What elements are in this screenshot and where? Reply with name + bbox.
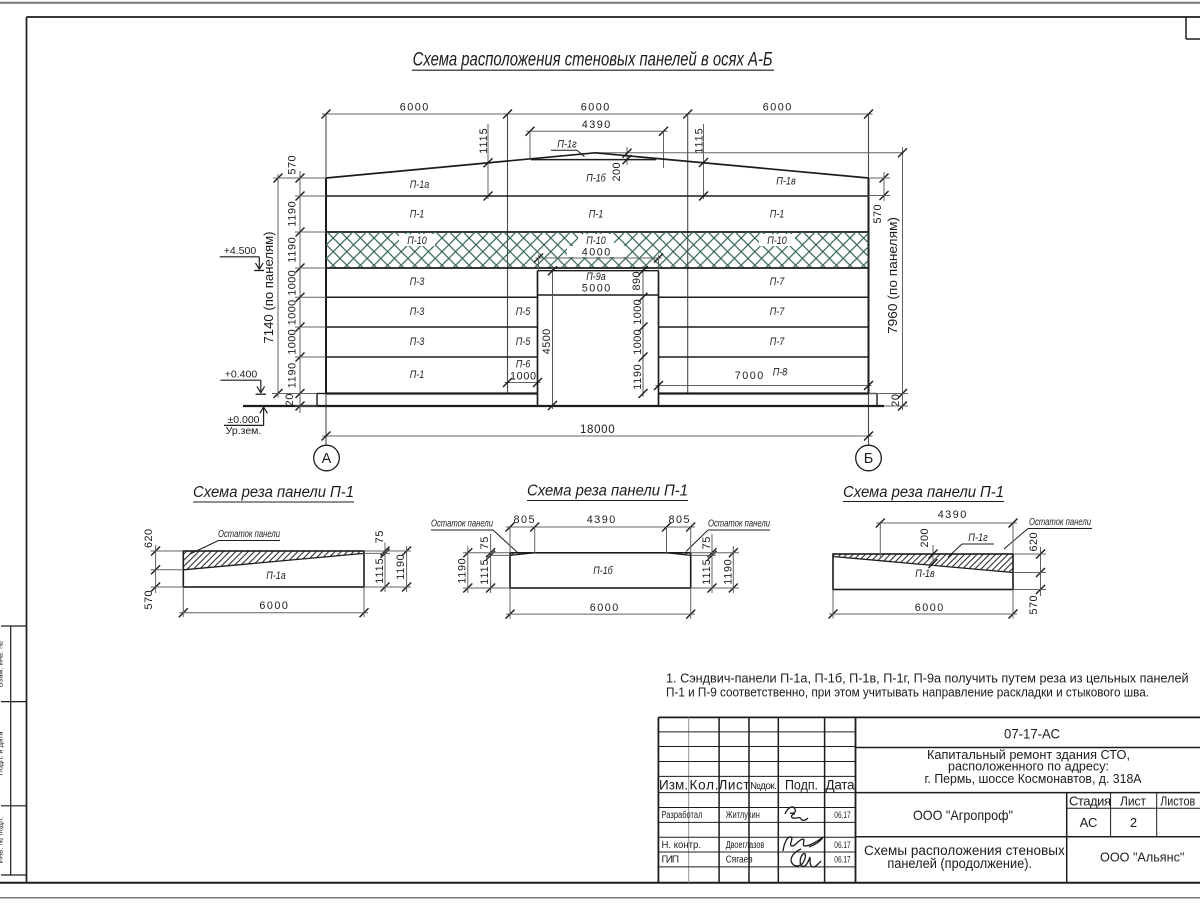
svg-text:6000: 6000 bbox=[259, 600, 288, 612]
svg-text:890: 890 bbox=[631, 272, 643, 291]
svg-text:П-1б: П-1б bbox=[593, 565, 613, 577]
svg-text:П-1г: П-1г bbox=[968, 532, 988, 544]
svg-text:Листов: Листов bbox=[1160, 794, 1195, 809]
svg-text:Инв. № подл.: Инв. № подл. bbox=[0, 817, 5, 864]
svg-text:П-9а: П-9а bbox=[586, 271, 605, 283]
svg-text:А: А bbox=[322, 451, 332, 467]
svg-text:П-7: П-7 bbox=[770, 276, 785, 288]
svg-text:1115: 1115 bbox=[374, 558, 386, 583]
svg-text:1000: 1000 bbox=[510, 371, 536, 383]
svg-text:АС: АС bbox=[1080, 815, 1098, 830]
svg-text:75: 75 bbox=[701, 537, 713, 550]
svg-text:Лист: Лист bbox=[719, 778, 750, 793]
svg-text:Схема реза панели П-1: Схема реза панели П-1 bbox=[193, 484, 354, 501]
svg-text:П-7: П-7 bbox=[770, 306, 785, 318]
svg-text:П-1: П-1 bbox=[770, 209, 785, 221]
svg-text:Изм.: Изм. bbox=[659, 778, 688, 793]
svg-text:06.17: 06.17 bbox=[834, 840, 850, 850]
svg-text:805: 805 bbox=[514, 514, 535, 526]
svg-text:Житлухин: Житлухин bbox=[726, 810, 760, 821]
svg-text:П-1г: П-1г bbox=[557, 139, 577, 151]
svg-text:1190: 1190 bbox=[632, 364, 644, 389]
svg-text:75: 75 bbox=[479, 537, 491, 550]
svg-text:1190: 1190 bbox=[287, 201, 299, 226]
svg-text:06.17: 06.17 bbox=[834, 810, 850, 820]
svg-text:805: 805 bbox=[669, 514, 690, 526]
svg-text:1000: 1000 bbox=[287, 300, 299, 325]
svg-text:570: 570 bbox=[287, 156, 299, 175]
svg-text:Взам. инв. №: Взам. инв. № bbox=[0, 641, 5, 687]
svg-text:1000: 1000 bbox=[632, 329, 644, 354]
svg-text:Остаток панели: Остаток панели bbox=[218, 529, 280, 540]
svg-text:6000: 6000 bbox=[581, 102, 610, 114]
svg-text:20: 20 bbox=[284, 394, 296, 407]
svg-text:18000: 18000 bbox=[580, 424, 615, 436]
svg-text:Б: Б bbox=[864, 451, 874, 467]
svg-text:Остаток панели: Остаток панели bbox=[1029, 517, 1091, 528]
svg-text:Остаток панели: Остаток панели bbox=[708, 519, 770, 530]
svg-text:1115: 1115 bbox=[478, 128, 490, 153]
svg-text:Схема расположения стеновых па: Схема расположения стеновых панелей в ос… bbox=[413, 49, 773, 70]
svg-text:1190: 1190 bbox=[287, 363, 299, 388]
svg-text:570: 570 bbox=[1028, 596, 1040, 615]
svg-text:П-3: П-3 bbox=[410, 336, 425, 348]
svg-text:П-1а: П-1а bbox=[410, 179, 429, 191]
svg-text:7140 (по панелям): 7140 (по панелям) bbox=[261, 232, 276, 344]
svg-text:П-7: П-7 bbox=[770, 336, 785, 348]
svg-text:1190: 1190 bbox=[457, 558, 469, 583]
svg-text:570: 570 bbox=[143, 591, 155, 610]
svg-text:П-5: П-5 bbox=[516, 306, 531, 318]
svg-text:панелей (продолжение).: панелей (продолжение). bbox=[887, 856, 1032, 871]
svg-text:Подп.: Подп. bbox=[785, 778, 818, 793]
svg-text:ГИП: ГИП bbox=[662, 854, 680, 865]
svg-text:620: 620 bbox=[143, 529, 155, 548]
svg-text:Подп. и дата: Подп. и дата bbox=[0, 731, 5, 776]
svg-text:570: 570 bbox=[872, 205, 884, 224]
svg-text:П-1 и П-9 соответственно, при: П-1 и П-9 соответственно, при этом учиты… bbox=[666, 684, 1149, 699]
svg-text:7000: 7000 bbox=[735, 370, 764, 382]
svg-text:П-1в: П-1в bbox=[915, 568, 934, 580]
svg-text:П-1в: П-1в bbox=[776, 176, 795, 188]
svg-text:1000: 1000 bbox=[287, 270, 299, 295]
svg-text:4000: 4000 bbox=[582, 246, 611, 258]
svg-text:1000: 1000 bbox=[287, 329, 299, 354]
svg-text:4390: 4390 bbox=[582, 119, 611, 131]
svg-text:Двоеглазов: Двоеглазов bbox=[726, 840, 765, 851]
svg-text:7960 (по панелям): 7960 (по панелям) bbox=[885, 217, 900, 334]
svg-text:Н. контр.: Н. контр. bbox=[662, 840, 702, 851]
svg-text:06.17: 06.17 bbox=[834, 854, 850, 864]
svg-text:Схема реза панели П-1: Схема реза панели П-1 bbox=[527, 483, 688, 500]
svg-text:Лист: Лист bbox=[1120, 794, 1146, 809]
svg-text:20: 20 bbox=[890, 394, 902, 407]
svg-text:ООО "Агропроф": ООО "Агропроф" bbox=[913, 807, 1013, 823]
svg-text:г. Пермь, шоссе Космонавтов, д: г. Пермь, шоссе Космонавтов, д. 318А bbox=[925, 771, 1142, 786]
svg-text:Остаток панели: Остаток панели bbox=[431, 519, 493, 530]
svg-text:Сягаев: Сягаев bbox=[726, 854, 753, 865]
svg-text:6000: 6000 bbox=[590, 602, 619, 614]
svg-text:1190: 1190 bbox=[395, 554, 407, 579]
svg-text:П-10: П-10 bbox=[407, 235, 427, 247]
svg-text:+0.400: +0.400 bbox=[225, 369, 258, 381]
svg-text:П-1а: П-1а bbox=[266, 570, 285, 582]
svg-text:4390: 4390 bbox=[938, 509, 967, 521]
svg-text:620: 620 bbox=[1028, 533, 1040, 552]
svg-text:П-10: П-10 bbox=[586, 235, 606, 247]
svg-text:Дата: Дата bbox=[826, 778, 855, 793]
svg-text:1115: 1115 bbox=[701, 559, 713, 584]
svg-text:П-5: П-5 bbox=[516, 336, 531, 348]
svg-text:№док.: №док. bbox=[750, 781, 777, 792]
svg-text:1. Сэндвич-панели П-1а, П-1б,: 1. Сэндвич-панели П-1а, П-1б, П-1в, П-1г… bbox=[666, 670, 1189, 685]
svg-text:Разработал: Разработал bbox=[662, 809, 703, 821]
svg-text:П-3: П-3 bbox=[410, 306, 425, 318]
svg-text:П-10: П-10 bbox=[767, 235, 787, 247]
svg-text:Схема реза панели П-1: Схема реза панели П-1 bbox=[843, 484, 1004, 501]
svg-text:2: 2 bbox=[1130, 815, 1137, 830]
svg-text:6000: 6000 bbox=[763, 102, 792, 114]
svg-text:1190: 1190 bbox=[723, 559, 735, 584]
svg-text:5000: 5000 bbox=[582, 283, 611, 295]
svg-text:Ур.зем.: Ур.зем. bbox=[226, 425, 262, 437]
svg-text:4390: 4390 bbox=[587, 514, 616, 526]
svg-text:07-17-АС: 07-17-АС bbox=[1004, 726, 1060, 741]
svg-text:1115: 1115 bbox=[479, 559, 491, 584]
svg-text:П-8: П-8 bbox=[773, 367, 788, 379]
svg-text:Кол.: Кол. bbox=[690, 778, 719, 793]
svg-text:П-1: П-1 bbox=[410, 209, 425, 221]
svg-text:П-1: П-1 bbox=[589, 209, 604, 221]
svg-text:ООО "Альянс": ООО "Альянс" bbox=[1100, 850, 1185, 865]
svg-text:П-3: П-3 bbox=[410, 276, 425, 288]
svg-text:200: 200 bbox=[919, 529, 931, 548]
svg-text:П-1: П-1 bbox=[410, 369, 425, 381]
svg-text:+4.500: +4.500 bbox=[224, 245, 257, 257]
svg-text:П-1б: П-1б bbox=[586, 173, 606, 185]
svg-text:200: 200 bbox=[611, 163, 623, 182]
svg-text:6000: 6000 bbox=[400, 102, 429, 114]
svg-text:6000: 6000 bbox=[915, 602, 944, 614]
svg-text:Стадия: Стадия bbox=[1069, 794, 1111, 809]
svg-text:1190: 1190 bbox=[287, 237, 299, 262]
svg-text:П-6: П-6 bbox=[516, 359, 531, 371]
svg-text:4500: 4500 bbox=[541, 329, 553, 354]
svg-text:1000: 1000 bbox=[632, 299, 644, 324]
svg-text:75: 75 bbox=[374, 531, 386, 544]
svg-text:1115: 1115 bbox=[694, 128, 706, 153]
